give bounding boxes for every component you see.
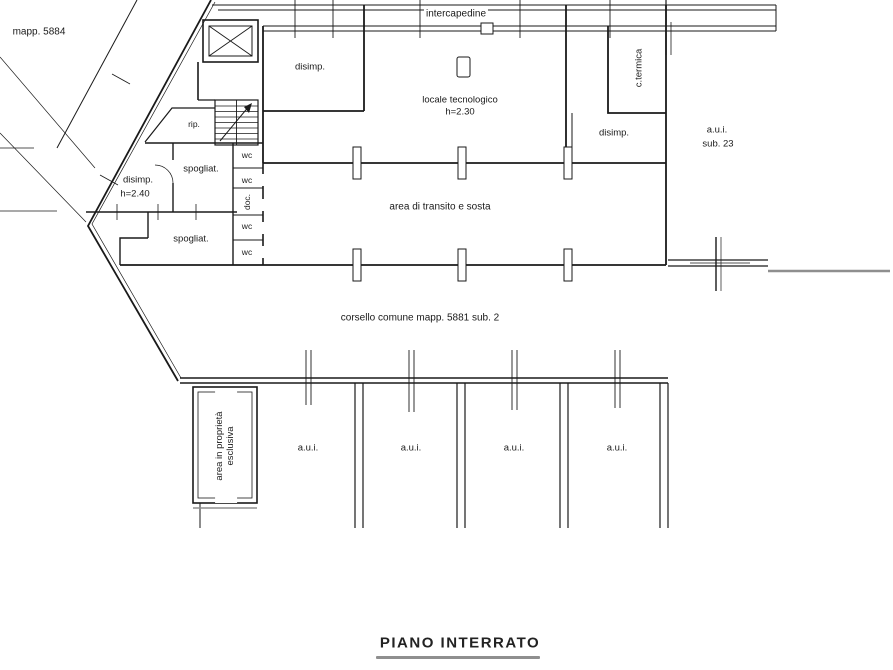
label-room-wc-1: wc	[240, 151, 254, 161]
garage-dividers	[355, 383, 668, 528]
label-room-c-termica: c.termica	[635, 47, 646, 90]
label-garage-aui-2: a.u.i.	[399, 444, 424, 455]
label-room-wc-3: wc	[240, 222, 254, 232]
label-room-disimp-left: disimp.	[121, 176, 155, 187]
label-room-locale-tecnologico: locale tecnologico	[420, 96, 500, 107]
label-aui-sub23-unit: a.u.i.	[705, 126, 730, 137]
label-garage-aui-3: a.u.i.	[502, 444, 527, 455]
building-walls	[120, 5, 666, 265]
label-disimp-left-height: h=2.40	[118, 190, 151, 201]
label-garage-aui-1: a.u.i.	[296, 444, 321, 455]
label-room-wc-2: wc	[240, 176, 254, 186]
intercapedine-walls	[212, 0, 776, 55]
label-area-proprieta-esclusiva: area in proprietà esclusiva	[215, 389, 237, 503]
label-room-rip: rip.	[186, 120, 202, 130]
corridor-pillars	[353, 147, 572, 281]
label-room-spogliatoio-2: spogliat.	[171, 235, 210, 246]
label-room-disimp-top: disimp.	[293, 63, 327, 74]
label-corsello-comune: corsello comune mapp. 5881 sub. 2	[339, 312, 501, 324]
label-room-doc: doc.	[243, 192, 253, 212]
staircase	[215, 100, 258, 145]
floor-plan-page: mapp. 5884 intercapedine disimp. locale …	[0, 0, 893, 670]
title-underline	[376, 656, 540, 659]
label-room-disimp-right: disimp.	[597, 129, 631, 140]
garage-block-walls	[180, 350, 668, 528]
label-aui-sub23-number: sub. 23	[700, 140, 735, 151]
elevator-shaft	[203, 20, 258, 62]
right-wing-wall	[668, 237, 890, 291]
label-room-spogliatoio-1: spogliat.	[181, 165, 220, 176]
site-boundary-lines	[0, 0, 215, 381]
label-room-wc-4: wc	[240, 248, 254, 258]
garage-door-stubs	[306, 350, 620, 412]
page-title: PIANO INTERRATO	[376, 635, 544, 652]
label-area-proprieta-line2: esclusiva	[226, 391, 237, 501]
label-locale-tecnologico-height: h=2.30	[443, 108, 476, 119]
label-garage-aui-4: a.u.i.	[605, 444, 630, 455]
label-parcel-mapp-5884: mapp. 5884	[11, 26, 68, 38]
label-area-transito: area di transito e sosta	[387, 201, 492, 213]
survey-cross-marker	[690, 237, 750, 291]
label-intercapedine: intercapedine	[424, 8, 488, 20]
